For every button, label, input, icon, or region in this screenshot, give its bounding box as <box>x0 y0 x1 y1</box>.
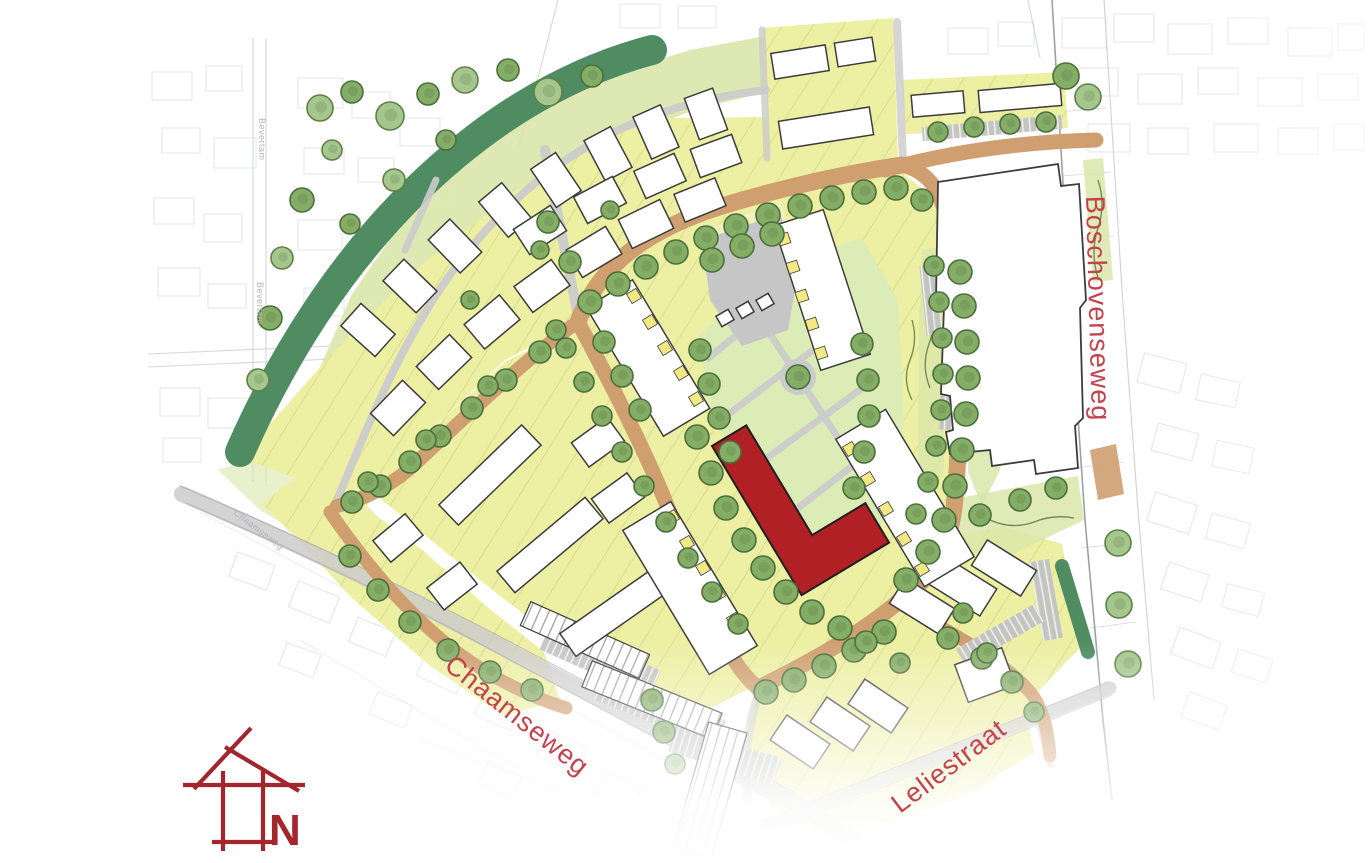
tree-shade <box>586 296 597 307</box>
tree-shade <box>715 412 725 422</box>
tree-icon <box>461 397 483 419</box>
tree-shade <box>913 509 922 518</box>
tree-icon <box>933 364 953 384</box>
tree-shade <box>808 606 819 617</box>
tree-shade <box>726 446 736 456</box>
tree-shade <box>563 343 572 352</box>
tree-icon <box>918 472 938 492</box>
tree-shade <box>614 278 625 289</box>
tree-shade <box>938 405 947 414</box>
tree-icon <box>857 369 879 391</box>
cadastral-building <box>998 22 1034 46</box>
tree-shade <box>423 435 432 444</box>
tree-icon <box>843 477 865 499</box>
tree-icon <box>529 341 551 363</box>
tree-shade <box>768 228 779 239</box>
cadastral-building <box>288 581 339 623</box>
tree-icon <box>461 291 479 309</box>
tree-shade <box>618 370 628 380</box>
tree-shade <box>266 312 277 323</box>
cadastral-building <box>206 66 242 91</box>
tree-icon <box>943 474 967 498</box>
tree-shade <box>641 481 650 490</box>
tree-shade <box>329 145 338 154</box>
tree-shade <box>794 371 805 382</box>
tree-shade <box>1052 482 1062 492</box>
cadastral-building <box>154 198 194 224</box>
cadastral-building <box>208 284 246 308</box>
tree-shade <box>553 325 562 334</box>
tree-icon <box>611 365 633 387</box>
tree-icon <box>1105 530 1131 556</box>
tree-shade <box>537 245 545 253</box>
tree-shade <box>918 194 928 204</box>
cadastral-line <box>1090 622 1136 628</box>
tree-shade <box>685 553 694 562</box>
tree-shade <box>858 338 868 348</box>
tree-icon <box>730 234 754 258</box>
tree-icon <box>953 603 973 623</box>
tree-icon <box>1045 477 1067 499</box>
tree-shade <box>880 626 891 637</box>
tree-shade <box>374 584 384 594</box>
tree-icon <box>884 176 908 200</box>
tree-icon <box>367 579 389 601</box>
tree-icon <box>911 189 933 211</box>
tree-icon <box>952 294 976 318</box>
tree-icon <box>383 169 405 191</box>
tree-icon <box>698 373 720 395</box>
tree-shade <box>1114 598 1126 610</box>
tree-shade <box>543 85 556 98</box>
tree-shade <box>709 587 718 596</box>
tree-icon <box>247 369 269 391</box>
tree-shade <box>467 295 475 303</box>
tree-shade <box>619 447 628 456</box>
cadastral-building <box>400 118 440 146</box>
tree-icon <box>417 83 439 105</box>
tree-icon <box>340 214 360 234</box>
tree-shade <box>759 562 770 573</box>
tree-icon <box>634 255 658 279</box>
tree-icon <box>955 330 979 354</box>
cadastral-building <box>229 552 275 590</box>
cadastral-building <box>214 138 256 168</box>
tree-shade <box>390 174 400 184</box>
tree-icon <box>656 512 676 532</box>
tree-icon <box>732 528 756 552</box>
tree-icon <box>341 81 363 103</box>
tree-shade <box>935 127 944 136</box>
tree-icon <box>531 241 549 259</box>
tree-shade <box>738 240 749 251</box>
tree-icon <box>708 407 730 429</box>
tree-shade <box>693 431 704 442</box>
tree-shade <box>960 608 969 617</box>
tree-shade <box>925 477 934 486</box>
tree-icon <box>929 292 949 312</box>
tree-shade <box>424 88 434 98</box>
tree-icon <box>1036 112 1056 132</box>
tree-shade <box>536 346 546 356</box>
bg-label-bevertam-north: Bevertam <box>257 118 267 161</box>
tree-icon <box>593 331 615 353</box>
tree-shade <box>705 378 715 388</box>
tree-icon <box>612 442 632 462</box>
building-footprint <box>834 37 875 67</box>
tree-icon <box>828 616 852 640</box>
tree-shade <box>708 254 719 265</box>
tree-shade <box>902 574 913 585</box>
tree-shade <box>544 216 554 226</box>
tree-shade <box>347 219 356 228</box>
tree-icon <box>964 117 984 137</box>
tree-shade <box>958 444 969 455</box>
tree-icon <box>751 556 775 580</box>
tree-icon <box>358 472 378 492</box>
tree-icon <box>694 226 718 250</box>
tree-icon <box>851 333 873 355</box>
tree-shade <box>931 261 940 270</box>
tree-shade <box>1016 494 1026 504</box>
tree-shade <box>707 467 718 478</box>
tree-shade <box>607 205 615 213</box>
tree-shade <box>956 266 967 277</box>
tree-shade <box>504 64 514 74</box>
tree-shade <box>971 122 980 131</box>
tree-shade <box>468 402 478 412</box>
tree-shade <box>642 261 653 272</box>
tree-icon <box>1053 63 1079 89</box>
tree-icon <box>956 366 980 390</box>
tree-shade <box>860 186 871 197</box>
tree-shade <box>672 246 683 257</box>
tree-shade <box>732 220 743 231</box>
tree-icon <box>478 376 498 396</box>
site-plan-svg: Boschovenseweg Chaamseweg Leliestraat Be… <box>0 0 1369 863</box>
tree-shade <box>702 232 713 243</box>
tree-icon <box>574 372 594 392</box>
tree-icon <box>629 399 651 421</box>
cadastral-building <box>678 6 716 28</box>
tree-shade <box>588 70 598 80</box>
cadastral-building <box>298 220 342 250</box>
tree-icon <box>894 568 918 592</box>
tree-shade <box>1043 117 1052 126</box>
tree-shade <box>962 408 973 419</box>
tree-shade <box>940 514 951 525</box>
tree-shade <box>964 372 975 383</box>
tree-icon <box>416 430 436 450</box>
cadastral-building <box>1062 18 1106 48</box>
tree-icon <box>931 400 951 420</box>
tree-shade <box>836 622 847 633</box>
tree-icon <box>926 436 946 456</box>
cadastral-building <box>948 28 988 54</box>
tree-icon <box>719 441 741 463</box>
tree-shade <box>860 446 870 456</box>
tree-icon <box>534 78 562 106</box>
tree-icon <box>699 461 723 485</box>
tree-icon <box>906 504 926 524</box>
cadastral-building <box>158 268 200 296</box>
tree-shade <box>278 252 288 262</box>
tree-shade <box>365 477 374 486</box>
tree-shade <box>436 430 446 440</box>
tree-shade <box>566 256 576 266</box>
tree-shade <box>940 369 949 378</box>
tree-icon <box>954 402 978 426</box>
tree-shade <box>951 480 962 491</box>
tree-icon <box>399 611 421 633</box>
tree-shade <box>963 336 974 347</box>
tree-shade <box>663 517 672 526</box>
tan-driveway <box>1090 444 1124 500</box>
tree-shade <box>764 209 775 220</box>
tree-shade <box>315 101 327 113</box>
tree-icon <box>634 476 654 496</box>
tree-icon <box>546 320 566 340</box>
tree-icon <box>786 365 810 389</box>
north-letter: N <box>269 806 301 855</box>
bg-label-bevertam-south: Bevertam <box>255 282 265 325</box>
tree-icon <box>322 140 342 160</box>
cadastral-building <box>204 214 242 242</box>
tree-icon <box>800 600 824 624</box>
tree-icon <box>728 614 748 634</box>
tree-icon <box>969 504 991 526</box>
tree-shade <box>600 336 610 346</box>
tree-shade <box>722 502 733 513</box>
tree-icon <box>436 130 456 150</box>
tree-shade <box>346 550 356 560</box>
tree-icon <box>1075 84 1101 110</box>
tree-shade <box>735 619 744 628</box>
tree-shade <box>939 333 948 342</box>
tree-icon <box>689 339 711 361</box>
tree-icon <box>1000 114 1020 134</box>
tree-icon <box>820 186 844 210</box>
cadastral-building <box>620 4 660 28</box>
tree-icon <box>858 405 880 427</box>
tree-icon <box>853 441 875 463</box>
street-label-boschovenseweg: Boschovenseweg <box>1080 195 1116 421</box>
right-fade-overlay <box>1150 0 1369 863</box>
tree-icon <box>700 248 724 272</box>
tree-icon <box>948 260 972 284</box>
tree-shade <box>636 404 646 414</box>
tree-shade <box>1083 90 1095 102</box>
cadastral-building <box>152 72 192 100</box>
building-footprint <box>911 91 965 117</box>
tree-icon <box>1106 592 1132 618</box>
cadastral-building <box>160 388 200 416</box>
tree-shade <box>1007 119 1016 128</box>
tree-shade <box>385 109 398 122</box>
tree-icon <box>916 540 940 564</box>
tree-icon <box>341 491 363 513</box>
tree-shade <box>254 374 264 384</box>
tree-shade <box>796 200 807 211</box>
gray-road <box>897 22 903 160</box>
tree-shade <box>348 496 358 506</box>
tree-shade <box>406 616 416 626</box>
tree-icon <box>664 240 688 264</box>
tree-icon <box>702 582 722 602</box>
tree-icon <box>271 247 293 269</box>
tree-shade <box>1061 69 1073 81</box>
tree-icon <box>685 425 709 449</box>
tree-icon <box>592 406 612 426</box>
tree-icon <box>290 188 314 212</box>
tree-shade <box>828 192 839 203</box>
tree-shade <box>933 441 942 450</box>
tree-shade <box>406 456 416 466</box>
tree-icon <box>452 67 478 93</box>
tree-icon <box>714 496 738 520</box>
tree-icon <box>924 256 944 276</box>
cadastral-building <box>1114 14 1154 42</box>
tree-shade <box>502 374 512 384</box>
tree-shade <box>1113 536 1125 548</box>
tree-shade <box>696 344 706 354</box>
tree-icon <box>932 328 952 348</box>
tree-shade <box>924 546 935 557</box>
tree-icon <box>774 580 798 604</box>
tree-icon <box>581 65 603 87</box>
tree-icon <box>950 438 974 462</box>
tree-icon <box>497 59 519 81</box>
tree-icon <box>578 290 602 314</box>
tree-icon <box>339 545 361 567</box>
site-plan-stage: Boschovenseweg Chaamseweg Leliestraat Be… <box>0 0 1369 863</box>
tree-icon <box>559 251 581 273</box>
tree-icon <box>928 122 948 142</box>
tree-shade <box>599 411 608 420</box>
tree-icon <box>932 508 956 532</box>
tree-shade <box>740 534 751 545</box>
gray-road <box>762 30 767 158</box>
cadastral-building <box>163 438 201 462</box>
tree-icon <box>788 194 812 218</box>
tree-shade <box>460 73 472 85</box>
tan-road <box>885 140 1096 170</box>
cadastral-building <box>162 128 200 153</box>
tree-icon <box>537 211 559 233</box>
tree-shade <box>298 194 309 205</box>
tree-shade <box>348 86 358 96</box>
tree-shade <box>782 586 793 597</box>
tree-icon <box>606 272 630 296</box>
tree-shade <box>485 381 494 390</box>
tree-shade <box>976 509 986 519</box>
tree-shade <box>581 377 590 386</box>
tree-icon <box>1009 489 1031 511</box>
tree-shade <box>864 374 874 384</box>
tree-icon <box>678 548 698 568</box>
tree-shade <box>850 482 860 492</box>
tree-icon <box>601 201 619 219</box>
tree-icon <box>307 95 333 121</box>
tree-shade <box>936 297 945 306</box>
tree-icon <box>760 222 784 246</box>
tree-shade <box>960 300 971 311</box>
tree-shade <box>865 410 875 420</box>
tree-icon <box>556 338 576 358</box>
tree-icon <box>399 451 421 473</box>
tree-icon <box>376 102 404 130</box>
tree-shade <box>443 135 452 144</box>
large-building-footprint <box>936 164 1086 474</box>
tree-shade <box>892 182 903 193</box>
tree-icon <box>852 180 876 204</box>
